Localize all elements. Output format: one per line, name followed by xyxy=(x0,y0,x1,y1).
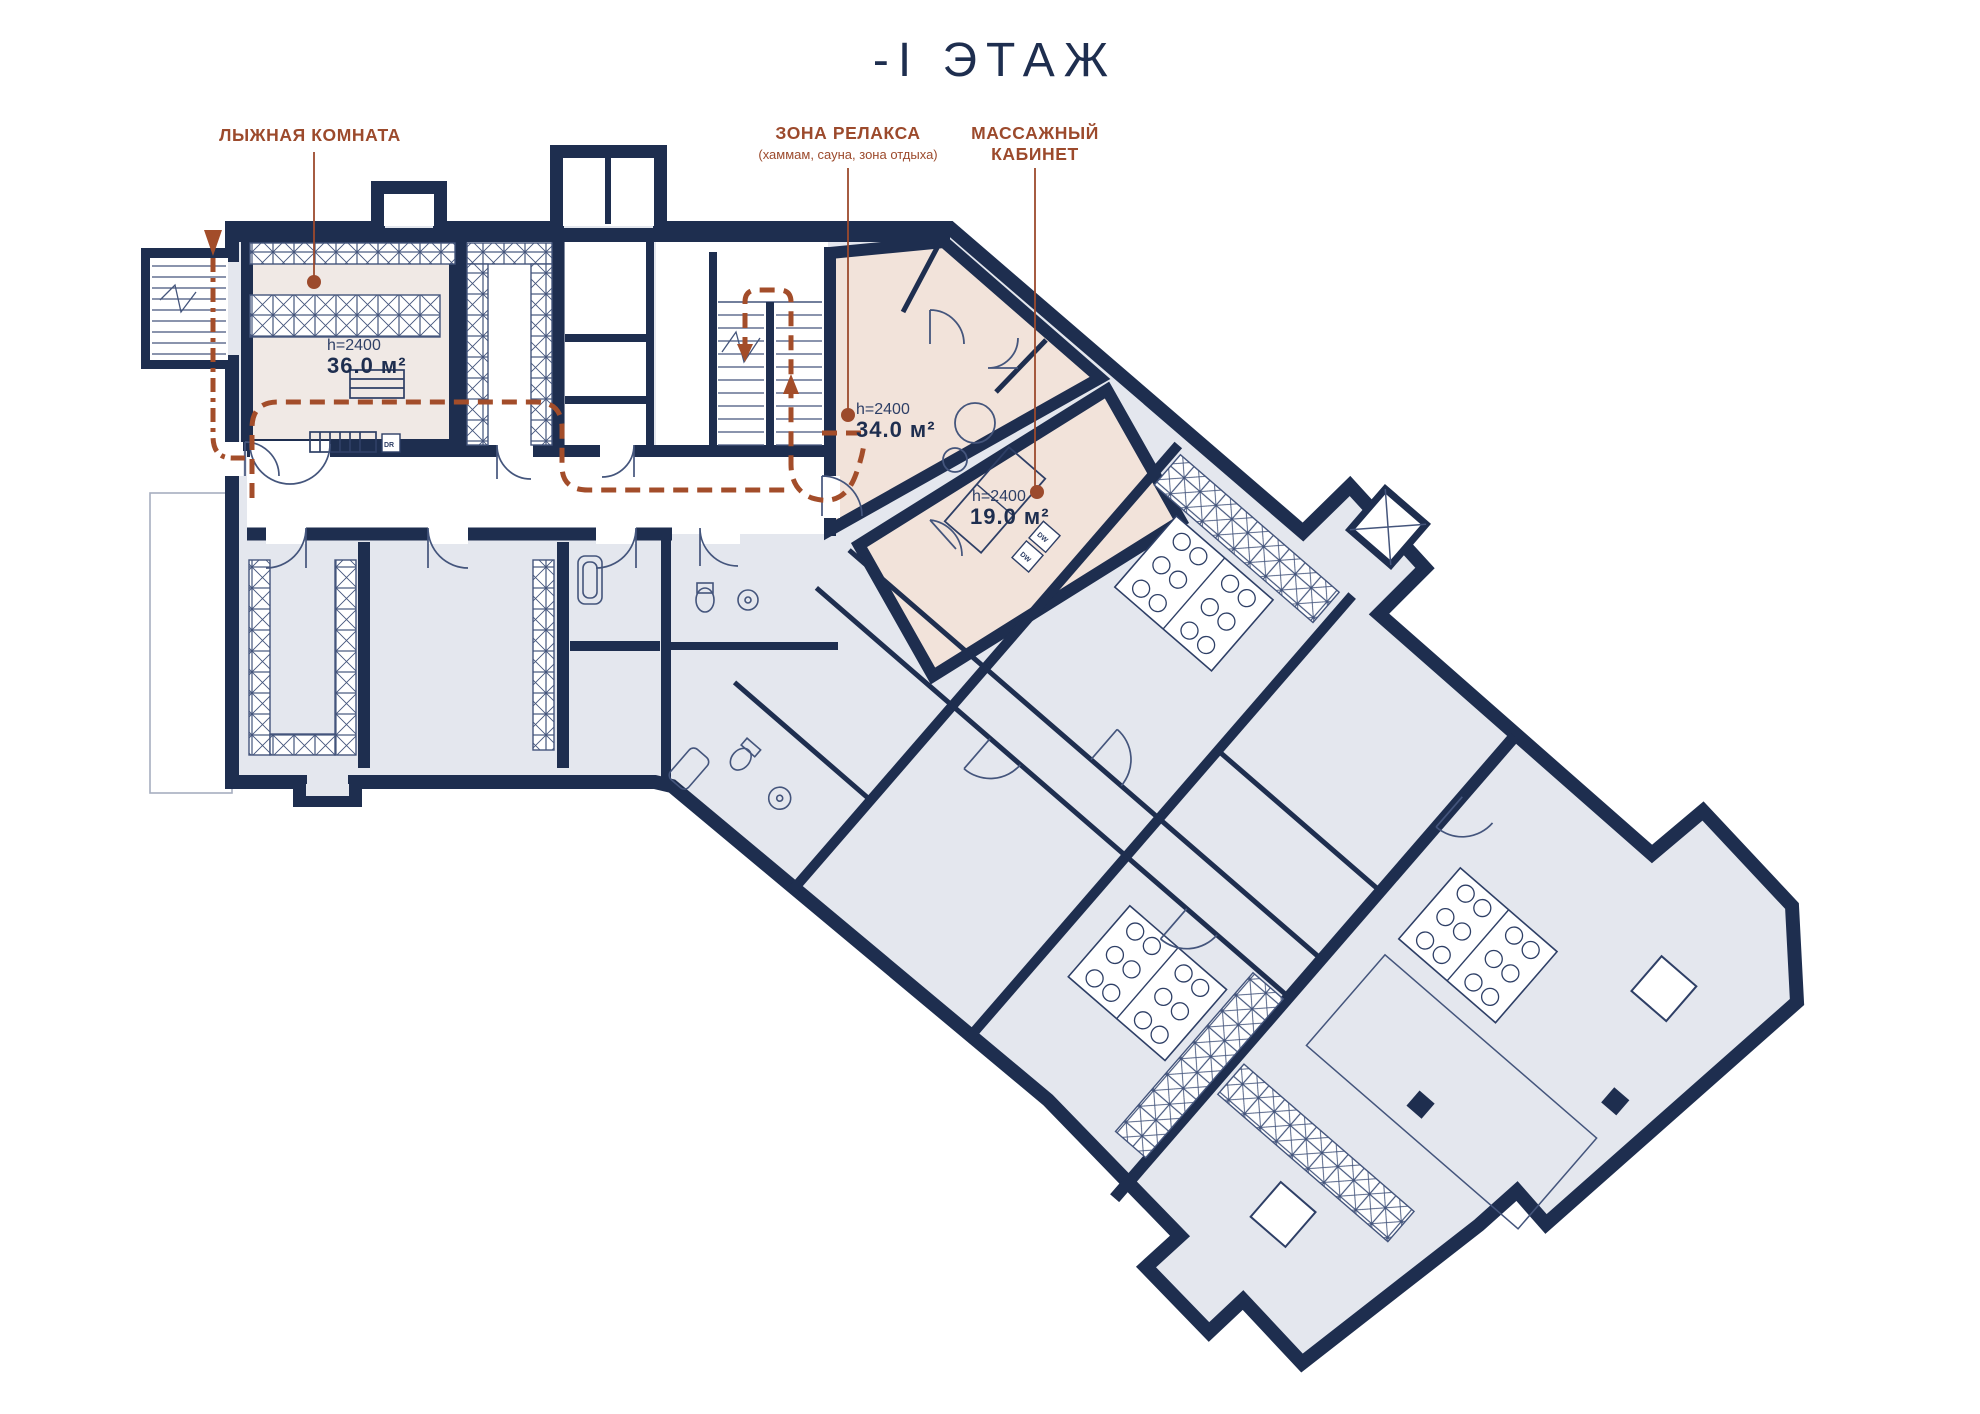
relax-zone-area: 34.0 м² xyxy=(856,417,936,442)
page-title: -I ЭТАЖ xyxy=(873,34,1117,87)
massage-room-label-line1: МАССАЖНЫЙ xyxy=(971,122,1099,143)
leader-dot xyxy=(841,408,855,422)
leader-dot xyxy=(307,275,321,289)
ski-room-height: h=2400 xyxy=(327,337,381,354)
relax-zone-height: h=2400 xyxy=(856,401,910,418)
leader-dot xyxy=(1030,485,1044,499)
relax-zone-label: ЗОНА РЕЛАКСА xyxy=(775,123,920,143)
ski-room-label: ЛЫЖНАЯ КОМНАТА xyxy=(219,125,401,145)
terrace-outline xyxy=(150,493,232,793)
drain-label: DR xyxy=(384,442,394,449)
massage-room-label-line2: КАБИНЕТ xyxy=(991,144,1079,164)
floor-plan-page: DW DW DR xyxy=(0,0,1980,1414)
massage-room-area: 19.0 м² xyxy=(970,504,1050,529)
ski-room-area: 36.0 м² xyxy=(327,353,407,378)
relax-zone-sublabel: (хаммам, сауна, зона отдыха) xyxy=(758,147,937,162)
massage-room-height: h=2400 xyxy=(972,488,1026,505)
drain-box: DR xyxy=(382,434,400,452)
floor-plan-canvas: DW DW DR xyxy=(0,0,1980,1414)
